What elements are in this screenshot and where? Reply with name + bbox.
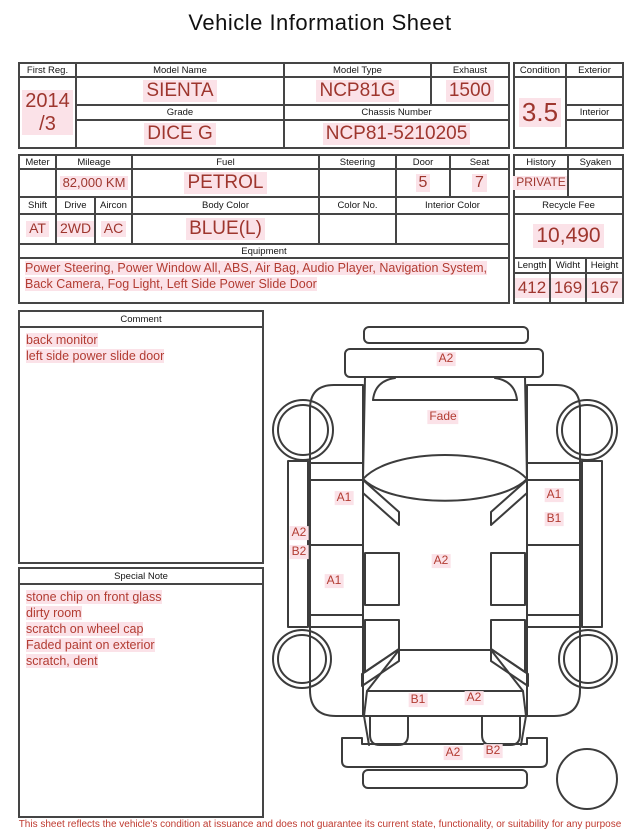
comment-header: Comment	[20, 312, 262, 328]
vehicle-information-sheet: Vehicle Information Sheet First Reg. 201…	[0, 0, 640, 835]
front-left-wheel-inner	[278, 405, 328, 455]
syaken-value	[567, 168, 624, 198]
damage-label: A2	[437, 352, 456, 366]
comment-line: left side power slide door	[26, 348, 256, 364]
front-fender-right	[527, 385, 580, 463]
drive-value: 2WD	[55, 213, 96, 245]
damage-label: A2	[432, 554, 451, 568]
spare-tire	[557, 749, 617, 809]
side-window-left	[365, 553, 399, 605]
c-pillar-left	[362, 649, 399, 686]
special-note-line: Faded paint on exterior	[26, 637, 256, 653]
front-fender-left	[310, 385, 363, 463]
equipment-value: Power Steering, Power Window All, ABS, A…	[18, 257, 510, 304]
tail-lamp-left	[370, 716, 408, 745]
front-bumper-upper	[364, 327, 528, 343]
body-color-value: BLUE(L)	[131, 213, 320, 245]
history-value: PRIVATE	[513, 168, 569, 198]
special-note-line: dirty room	[26, 605, 256, 621]
front-right-wheel	[557, 400, 617, 460]
front-left-wheel	[273, 400, 333, 460]
length-value: 412	[513, 272, 551, 304]
special-note-line: scratch, dent	[26, 653, 256, 669]
aircon-value: AC	[94, 213, 133, 245]
a-pillar-left	[363, 480, 399, 525]
special-note-header: Special Note	[20, 569, 262, 585]
damage-label: Fade	[427, 410, 458, 424]
special-note-line: stone chip on front glass	[26, 589, 256, 605]
exterior-value	[565, 76, 624, 106]
lower-gate-edges	[364, 716, 526, 745]
tail-lamp-right	[482, 716, 520, 745]
damage-label: B1	[545, 512, 564, 526]
steering-value	[318, 168, 397, 198]
special-note-box: Special Note stone chip on front glass d…	[18, 567, 264, 818]
right-sill	[582, 461, 602, 627]
special-note-body: stone chip on front glass dirty room scr…	[20, 585, 262, 673]
a-pillar-right	[491, 480, 527, 525]
meter-value	[18, 168, 57, 198]
chassis-number-value: NCP81-5210205	[283, 119, 510, 149]
model-type-value: NCP81G	[283, 76, 432, 106]
exhaust-value: 1500	[430, 76, 510, 106]
damage-label: A1	[325, 574, 344, 588]
rear-right-wheel-inner	[564, 635, 612, 683]
disclaimer-text: This sheet reflects the vehicle's condit…	[0, 819, 640, 830]
damage-label: A1	[545, 488, 564, 502]
side-window-right	[491, 553, 525, 605]
special-note-line: scratch on wheel cap	[26, 621, 256, 637]
c-pillar-right	[491, 649, 528, 686]
shift-value: AT	[18, 213, 57, 245]
page-title: Vehicle Information Sheet	[0, 10, 640, 36]
damage-label: B2	[290, 545, 309, 559]
grade-value: DICE G	[75, 119, 285, 149]
height-value: 167	[585, 272, 624, 304]
rear-left-wheel-inner	[278, 635, 326, 683]
hood-corner-left	[373, 378, 395, 400]
damage-label: A2	[465, 691, 484, 705]
damage-label: A1	[335, 491, 354, 505]
color-no-value	[318, 213, 397, 245]
damage-label: B1	[409, 693, 428, 707]
model-name-value: SIENTA	[75, 76, 285, 106]
condition-value: 3.5	[513, 76, 567, 149]
comment-body: back monitor left side power slide door	[20, 328, 262, 368]
mileage-value: 82,000 KM	[55, 168, 133, 198]
rear-window	[367, 650, 523, 691]
first-reg-value: 2014 /3	[18, 76, 77, 149]
fuel-value: PETROL	[131, 168, 320, 198]
front-right-wheel-inner	[562, 405, 612, 455]
damage-label: B2	[484, 744, 503, 758]
tailgate	[364, 691, 526, 716]
interior-value	[565, 119, 624, 149]
rear-bumper-lower	[363, 770, 527, 788]
recycle-fee-value: 10,490	[513, 213, 624, 259]
width-value: 169	[549, 272, 587, 304]
door-value: 5	[395, 168, 451, 198]
comment-box: Comment back monitor left side power sli…	[18, 310, 264, 564]
rear-left-wheel	[273, 630, 331, 688]
comment-line: back monitor	[26, 332, 256, 348]
damage-label: A2	[290, 526, 309, 540]
hood-corner-right	[495, 378, 517, 400]
damage-label: A2	[444, 746, 463, 760]
interior-color-value	[395, 213, 510, 245]
windshield	[363, 455, 527, 501]
rear-right-wheel	[559, 630, 617, 688]
seat-value: 7	[449, 168, 510, 198]
